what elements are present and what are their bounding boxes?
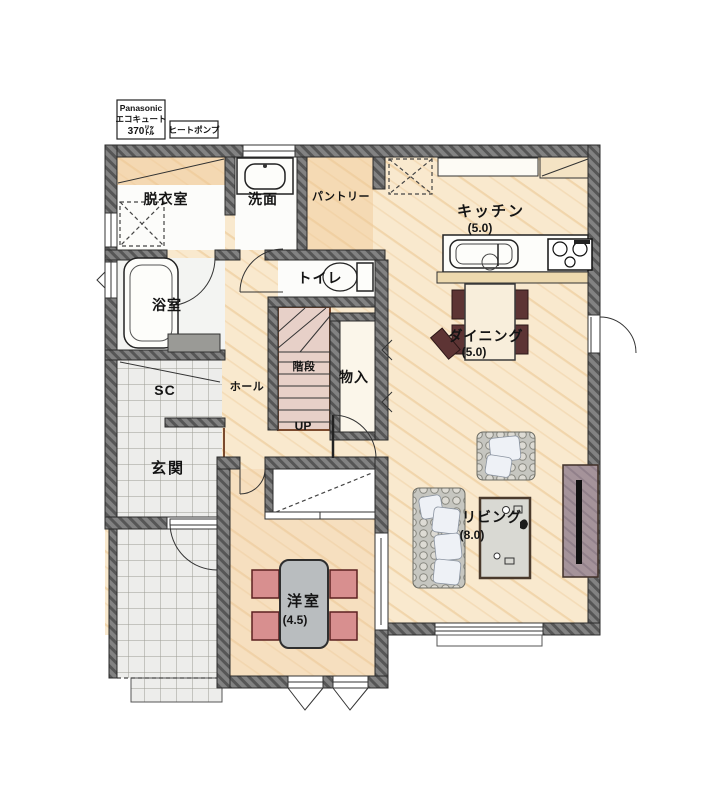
wall-porch-divider (217, 457, 230, 688)
tv-icon (576, 480, 582, 564)
wall-pantry-stub (373, 157, 385, 189)
wall-sc-stub (165, 418, 225, 427)
kitchen-bar-counter (437, 272, 588, 283)
youshitsu-chair (252, 570, 279, 598)
porch-step (131, 678, 222, 702)
door-closet-sliding (265, 512, 375, 519)
wall-datsui-senmen (225, 157, 235, 215)
wall-youshitsu-right-a (375, 457, 388, 533)
stove (548, 239, 592, 270)
wall-youshitsu-top-a (217, 457, 240, 469)
equipment-notes: Panasonic エコキュート 370㍑ ヒートポンプ (115, 100, 219, 139)
terrace-step (437, 635, 542, 646)
ecocute-line3: 370㍑ (128, 125, 155, 137)
room-label-dining: ダイニング (449, 328, 524, 344)
kitchen-cupboard (438, 158, 538, 176)
room-label-hall: ホール (230, 380, 265, 393)
room-size-kitchen: (5.0) (468, 221, 493, 235)
wall-top (105, 145, 600, 157)
window-youshitsu-2 (333, 676, 368, 710)
youshitsu-chair (252, 612, 279, 640)
window-youshitsu-1 (288, 676, 323, 710)
wall-toilet-bottom (268, 297, 385, 307)
bath-counter (168, 334, 220, 352)
wall-entrance (105, 517, 170, 529)
room-size-youshitsu: (4.5) (283, 613, 308, 627)
room-label-toilet: トイレ (298, 270, 343, 286)
stairs-up-label: UP (295, 419, 312, 433)
floor-plan-drawing: Panasonic エコキュート 370㍑ ヒートポンプ 脱衣室 洗面 パントリ… (0, 0, 726, 811)
heat-pump-label: ヒートポンプ (169, 125, 220, 135)
door-right-exterior (588, 315, 636, 353)
room-label-youshitsu: 洋室 (287, 592, 321, 610)
room-label-kitchen: キッチン (457, 203, 525, 220)
tv-board (563, 465, 598, 577)
wall-youshitsu-top-b (265, 457, 388, 469)
window-senmen-top (243, 145, 295, 157)
wall-bath-top-b (215, 250, 240, 260)
ecocute-line2: エコキュート (115, 114, 166, 124)
room-label-stairs: 階段 (293, 359, 316, 373)
floor-porch (117, 529, 217, 678)
room-label-sc: SC (154, 382, 175, 398)
floor-plan-page: Panasonic エコキュート 370㍑ ヒートポンプ 脱衣室 洗面 パントリ… (0, 0, 726, 811)
door-youshitsu-living-sliding (375, 533, 388, 630)
wall-porch-left (109, 529, 117, 678)
window-datsui-left (105, 213, 117, 247)
kitchen-counter (437, 235, 592, 283)
youshitsu-chair (330, 570, 357, 598)
room-label-living: リビング (462, 509, 522, 525)
wall-closet-left (265, 469, 273, 515)
room-size-dining: (5.0) (462, 345, 487, 359)
room-label-storage: 物入 (339, 369, 369, 385)
wall-youshitsu-right-b (375, 630, 388, 676)
wall-toilet-top (265, 250, 385, 260)
room-label-genkan: 玄関 (151, 459, 185, 477)
room-label-bathroom: 浴室 (152, 297, 182, 313)
vent-arrow-icon (97, 272, 105, 288)
room-size-living: (8.0) (460, 528, 485, 542)
window-bathroom-left (97, 262, 117, 298)
dining-chair (452, 290, 465, 319)
ecocute-line1: Panasonic (120, 103, 163, 113)
floor-pantry-tint (307, 157, 373, 250)
room-label-pantry: パントリー (312, 190, 370, 203)
wall-senmen-pantry (297, 157, 307, 250)
youshitsu-chair (330, 612, 357, 640)
vanity-sink (237, 158, 293, 194)
room-label-datsui: 脱衣室 (144, 191, 189, 207)
room-label-senmen: 洗面 (248, 191, 278, 207)
wall-left (105, 145, 117, 529)
dining-chair (515, 290, 528, 319)
window-living-bottom (435, 623, 543, 646)
wall-stairs-left (268, 307, 278, 430)
